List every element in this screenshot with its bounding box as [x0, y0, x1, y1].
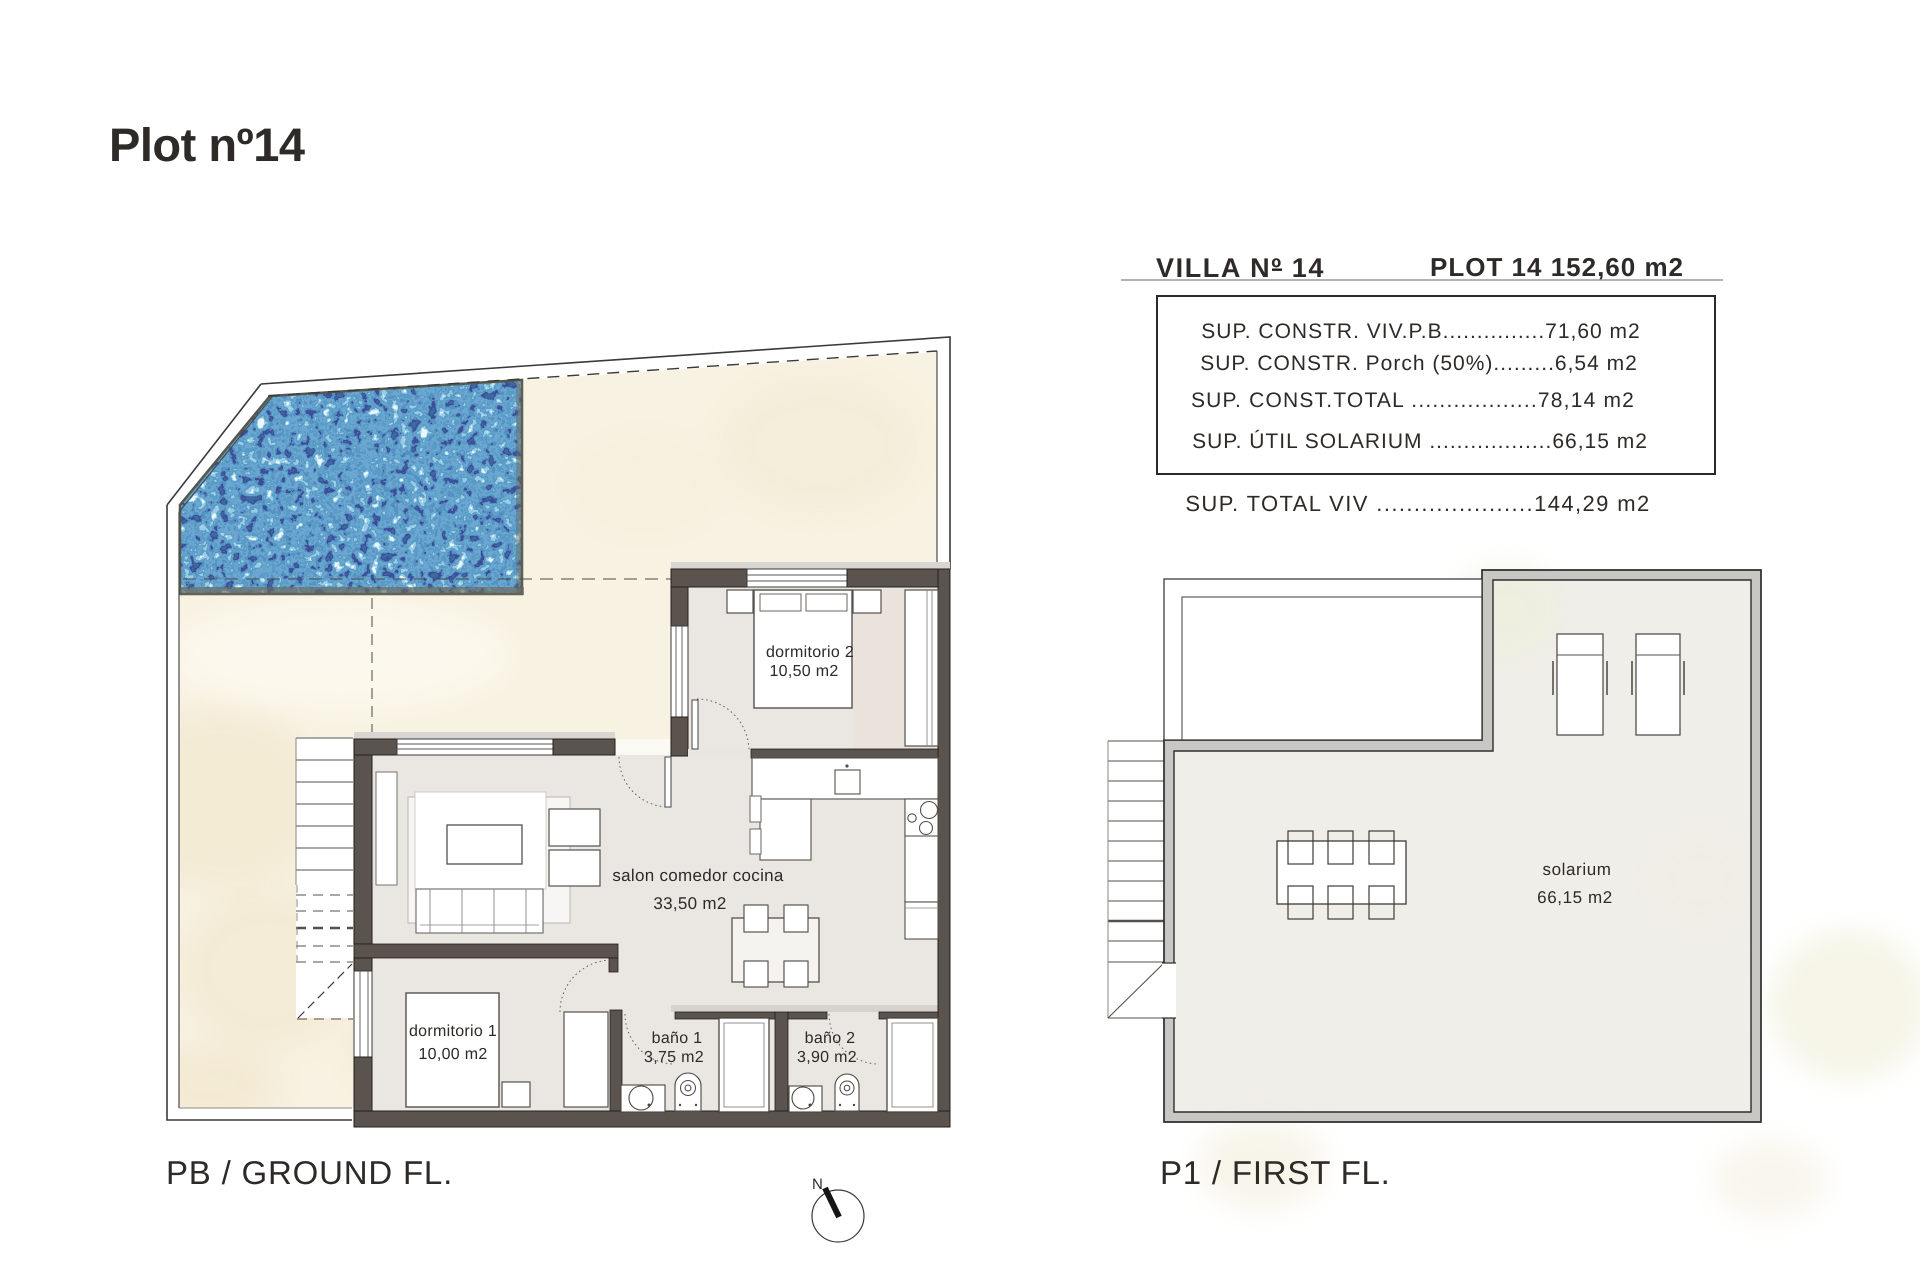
svg-text:66,15 m2: 66,15 m2 [1537, 888, 1613, 907]
svg-text:SUP. CONST.TOTAL .............: SUP. CONST.TOTAL ..................78,14… [1191, 389, 1635, 412]
svg-text:3,90 m2: 3,90 m2 [797, 1049, 857, 1066]
svg-text:PB / GROUND FL.: PB / GROUND FL. [166, 1154, 453, 1191]
svg-text:dormitorio 1: dormitorio 1 [409, 1023, 497, 1040]
svg-text:solarium: solarium [1542, 860, 1611, 879]
svg-text:VILLA Nº 14: VILLA Nº 14 [1156, 253, 1325, 283]
svg-text:33,50 m2: 33,50 m2 [653, 894, 726, 913]
svg-text:SUP. CONSTR. VIV.P.B..........: SUP. CONSTR. VIV.P.B...............71,60… [1201, 320, 1640, 343]
svg-text:N: N [812, 1176, 823, 1193]
svg-text:SUP. ÚTIL SOLARIUM ...........: SUP. ÚTIL SOLARIUM ..................66,… [1192, 429, 1648, 453]
svg-text:salon comedor cocina: salon comedor cocina [612, 866, 784, 885]
svg-text:Plot nº14: Plot nº14 [109, 118, 305, 171]
svg-text:3,75 m2: 3,75 m2 [644, 1049, 704, 1066]
svg-text:SUP. CONSTR. Porch (50%)......: SUP. CONSTR. Porch (50%).........6,54 m2 [1200, 352, 1638, 375]
svg-text:P1 / FIRST FL.: P1 / FIRST FL. [1160, 1154, 1391, 1191]
svg-text:SUP. TOTAL VIV ...............: SUP. TOTAL VIV .....................144,… [1185, 491, 1650, 516]
svg-text:10,00 m2: 10,00 m2 [418, 1046, 487, 1063]
svg-text:baño 2: baño 2 [805, 1030, 856, 1047]
svg-text:PLOT 14 152,60 m2: PLOT 14 152,60 m2 [1430, 252, 1684, 282]
svg-text:baño 1: baño 1 [652, 1030, 703, 1047]
svg-text:10,50 m2: 10,50 m2 [769, 663, 838, 680]
svg-text:dormitorio 2: dormitorio 2 [766, 644, 854, 661]
